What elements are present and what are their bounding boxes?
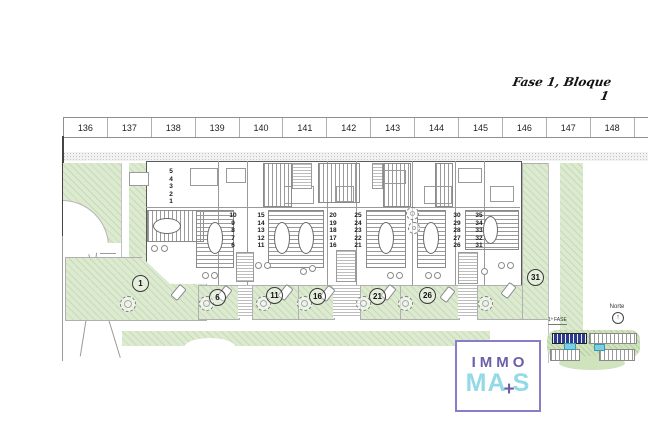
stairs-icon — [336, 250, 356, 282]
furniture-icon — [161, 245, 168, 252]
garden-strip-right — [560, 163, 583, 330]
minimap-building — [550, 349, 580, 361]
minimap-building — [589, 333, 637, 344]
table-icon — [378, 222, 394, 254]
furniture-icon — [151, 245, 158, 252]
furniture-icon — [202, 272, 209, 279]
room — [190, 168, 218, 186]
furniture-icon — [255, 262, 262, 269]
garden-steps — [458, 285, 477, 318]
plot-badge-26: 26 — [419, 287, 436, 304]
site-minimap — [547, 322, 641, 374]
driveway-line — [100, 253, 116, 254]
plus-icon: + — [504, 379, 516, 400]
logo-line2: MA+S — [466, 371, 531, 398]
pergola-icon — [263, 163, 292, 207]
minimap-pool-icon — [594, 344, 605, 351]
ruler-cell: 139 — [196, 118, 240, 137]
tree-icon — [120, 296, 136, 312]
stairs-icon — [458, 252, 478, 284]
north-label: Norte — [600, 304, 634, 310]
furniture-icon — [481, 268, 488, 275]
table-icon — [207, 222, 223, 254]
ruler-cell: 144 — [415, 118, 459, 137]
garden-area-left — [63, 163, 121, 243]
plot-badge-21: 21 — [369, 288, 386, 305]
table-icon — [483, 216, 498, 244]
street-strip — [63, 152, 648, 161]
pergola-icon — [383, 163, 411, 207]
room — [458, 168, 482, 183]
tree-icon — [406, 207, 419, 220]
tree-icon — [478, 296, 493, 311]
room — [226, 168, 246, 183]
table-icon — [274, 222, 290, 254]
building-annex-room — [129, 172, 149, 186]
pergola-icon — [435, 163, 453, 207]
furniture-icon — [211, 272, 218, 279]
ruler-cell: 137 — [108, 118, 152, 137]
curved-path — [63, 200, 109, 243]
immomas-logo: IMMO MA+S — [455, 340, 541, 412]
garden-steps — [238, 285, 252, 318]
site-plan-page: Fase 1, Bloque 1 136 137 138 139 140 141… — [0, 0, 648, 439]
ruler-cell: 147 — [547, 118, 591, 137]
furniture-icon — [434, 272, 441, 279]
logo-ma: MA — [466, 369, 507, 397]
tree-icon — [408, 222, 420, 234]
furniture-icon — [264, 262, 271, 269]
furniture-icon — [498, 262, 505, 269]
stairs-icon — [236, 252, 254, 282]
table-icon — [298, 222, 314, 254]
plot-badge-1: 1 — [132, 275, 149, 292]
garden-plot-31 — [522, 163, 550, 320]
table-icon — [423, 222, 439, 254]
ruler-cell: 149 — [635, 118, 648, 137]
plot-badge-16: 16 — [309, 288, 326, 305]
ruler-cell: 148 — [591, 118, 635, 137]
ruler-cell: 136 — [64, 118, 108, 137]
ruler-cell: 142 — [327, 118, 371, 137]
minimap-pool-icon — [564, 343, 576, 350]
furniture-icon — [396, 272, 403, 279]
stairs-icon — [292, 163, 312, 189]
furniture-icon — [300, 268, 307, 275]
page-title: Fase 1, Bloque 1 — [498, 75, 613, 103]
ruler-cell: 146 — [503, 118, 547, 137]
plot-badge-6: 6 — [209, 289, 226, 306]
garden-strip-bottom — [122, 331, 490, 346]
plot-badge-31: 31 — [527, 269, 544, 286]
room — [490, 186, 514, 202]
pergola-icon — [318, 163, 360, 203]
table-icon — [153, 218, 181, 234]
ruler-cell: 141 — [283, 118, 327, 137]
unit-stack-31-35: 35 34 33 32 31 — [473, 212, 485, 250]
unit-stack-26-30: 30 29 28 27 26 — [451, 212, 463, 250]
unit-stack-11-15: 15 14 13 12 11 — [255, 212, 267, 250]
furniture-icon — [387, 272, 394, 279]
tree-icon — [398, 296, 413, 311]
path-bump — [184, 338, 236, 346]
unit-stack-16-20: 20 19 18 17 16 — [327, 212, 339, 250]
ruler-cell: 140 — [240, 118, 284, 137]
plot-badge-11: 11 — [266, 287, 283, 304]
unit-stack-21-25: 25 24 23 22 21 — [352, 212, 364, 250]
unit-stack-1-5: 5 4 3 2 1 — [165, 168, 177, 206]
ruler-cell: 145 — [459, 118, 503, 137]
site-boundary-line — [62, 236, 63, 361]
building-wall — [146, 207, 520, 208]
furniture-icon — [309, 265, 316, 272]
furniture-icon — [425, 272, 432, 279]
unit-stack-6-10: 10 9 8 7 6 — [227, 212, 239, 250]
scale-ruler: 136 137 138 139 140 141 142 143 144 145 … — [63, 117, 648, 138]
stairs-icon — [372, 163, 383, 189]
furniture-icon — [507, 262, 514, 269]
ruler-cell: 143 — [371, 118, 415, 137]
ruler-cell: 138 — [152, 118, 196, 137]
